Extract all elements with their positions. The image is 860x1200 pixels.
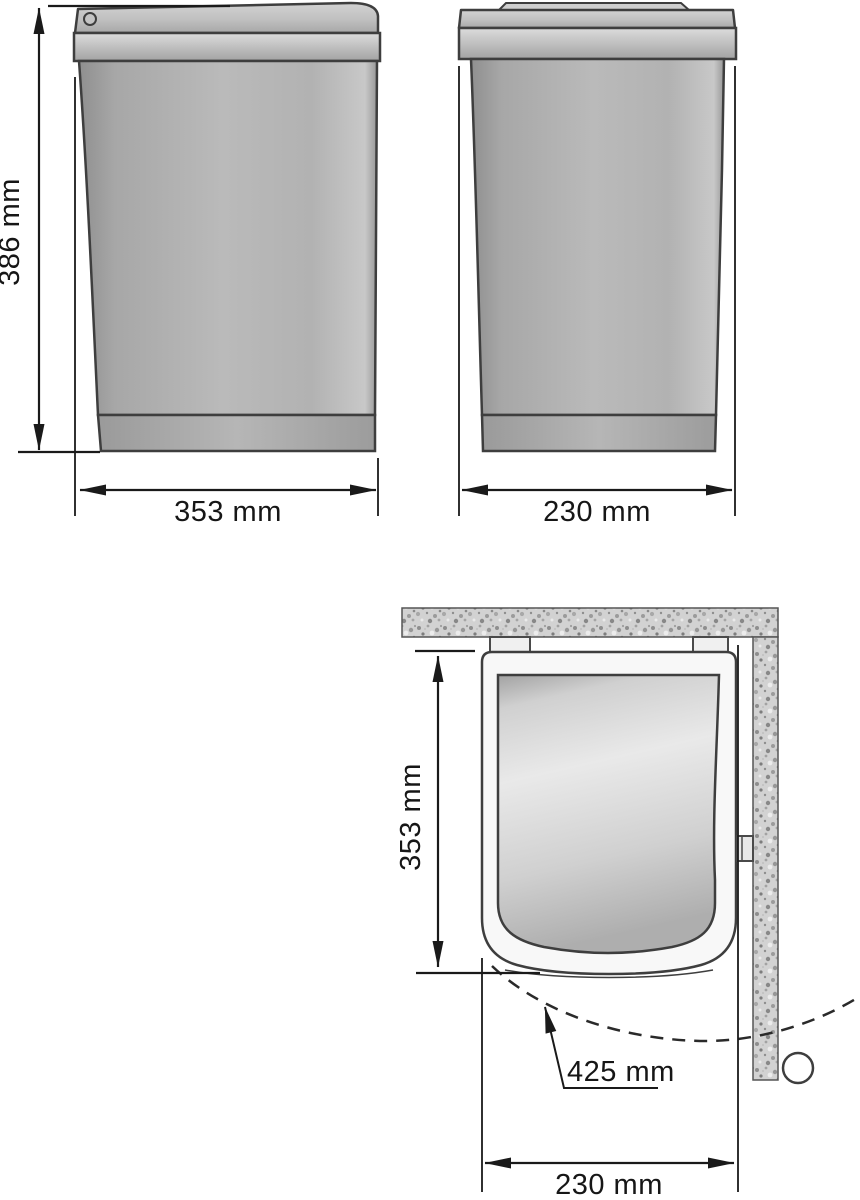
side-width-label: 230 mm	[543, 496, 651, 528]
bin-body	[471, 59, 724, 415]
bin-collar	[459, 28, 736, 59]
mounting-bracket-right	[693, 637, 728, 652]
cabinet-door	[402, 608, 778, 637]
diagram-canvas: 386 mm 353 mm 230 mm	[0, 0, 860, 1200]
dimension-diagram: 386 mm 353 mm 230 mm	[0, 0, 860, 1200]
swing-radius-label: 425 mm	[567, 1056, 675, 1088]
side-view: 230 mm	[459, 3, 736, 528]
bin-base	[98, 415, 375, 451]
wall-latch	[737, 836, 753, 861]
top-width-label: 230 mm	[555, 1169, 663, 1200]
cabinet-side-wall	[753, 637, 778, 1080]
front-view: 386 mm 353 mm	[0, 3, 380, 528]
bin-collar	[74, 33, 380, 61]
bin-lid	[75, 3, 378, 33]
top-view-installation: 425 mm 353 mm 230 mm	[395, 608, 860, 1200]
bin-top-view	[498, 675, 719, 953]
door-swing-arc	[492, 966, 860, 1041]
top-depth-label: 353 mm	[395, 763, 427, 871]
door-hinge-pin	[783, 1053, 813, 1083]
front-height-label: 386 mm	[0, 178, 26, 286]
lid-hinge-pin	[84, 13, 96, 25]
mounting-bracket-left	[490, 637, 530, 652]
bin-body	[79, 61, 377, 415]
bin-lid	[459, 10, 735, 28]
bin-base	[482, 415, 716, 451]
front-width-label: 353 mm	[174, 496, 282, 528]
